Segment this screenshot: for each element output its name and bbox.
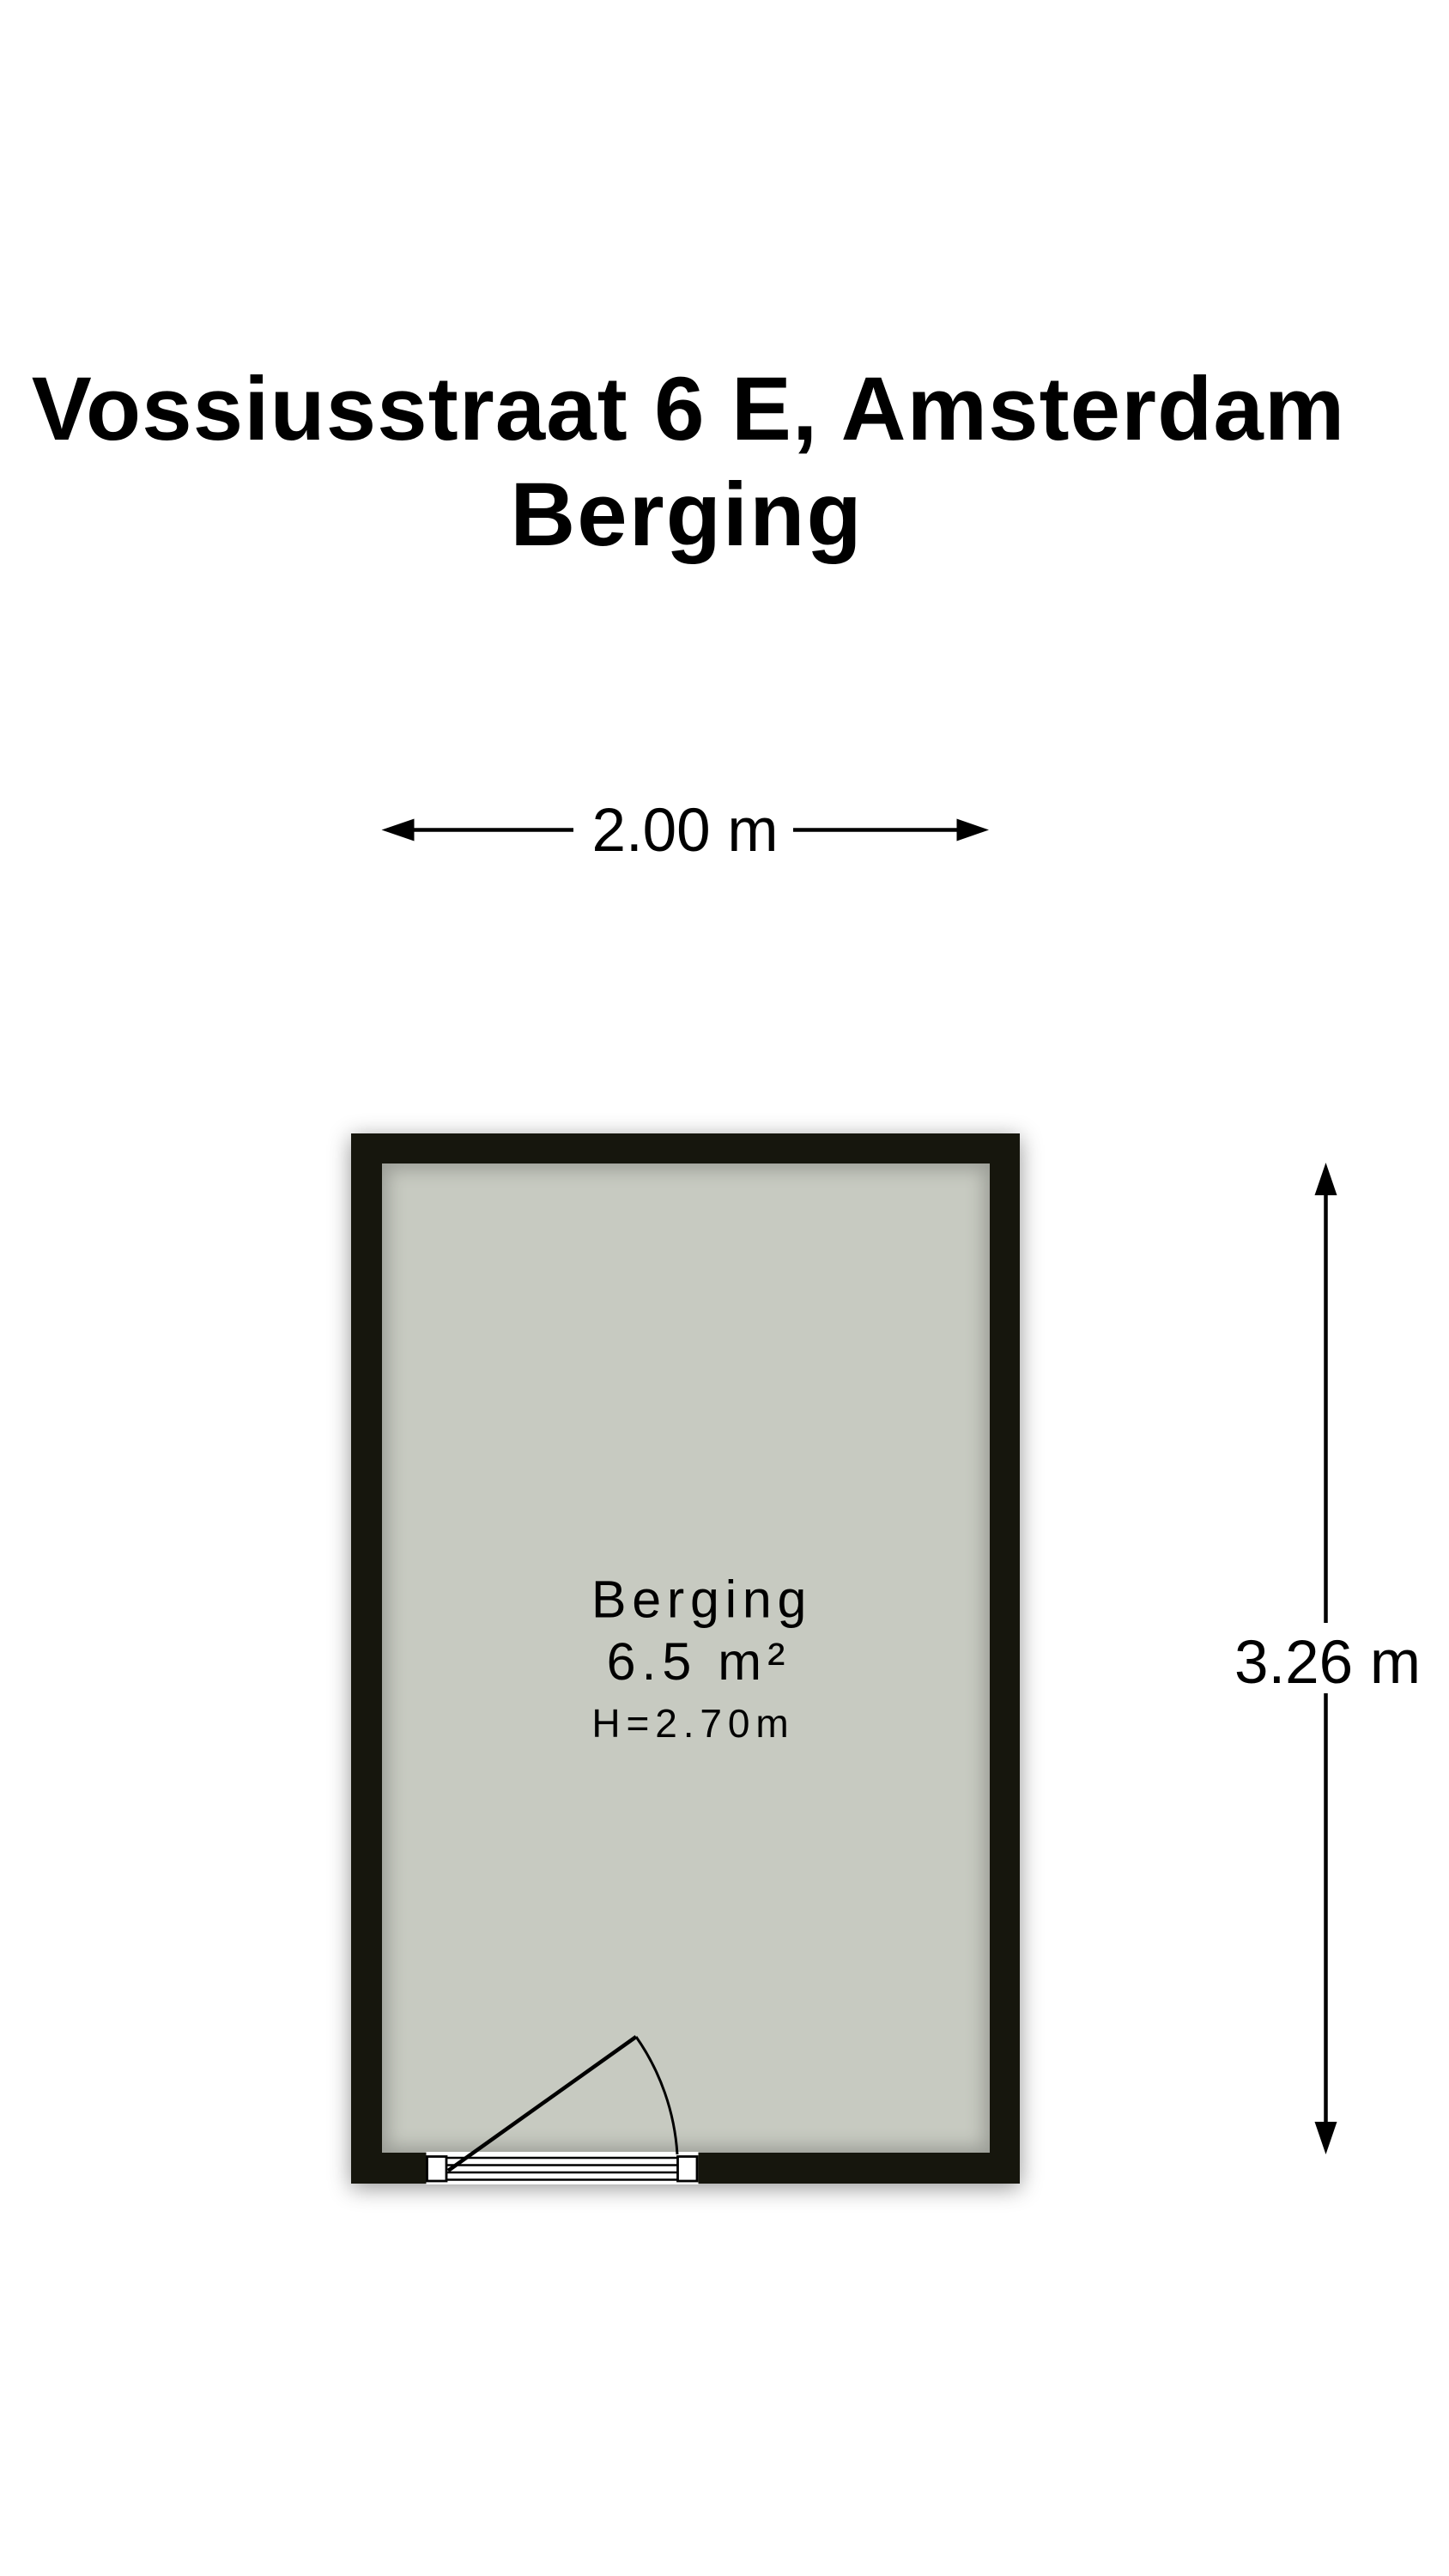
svg-text:6.5 m²: 6.5 m² bbox=[607, 1632, 791, 1691]
svg-text:Vossiusstraat 6 E, Amsterdam: Vossiusstraat 6 E, Amsterdam bbox=[32, 359, 1346, 459]
svg-text:Berging: Berging bbox=[510, 465, 863, 565]
svg-text:H=2.70m: H=2.70m bbox=[591, 1701, 794, 1746]
svg-text:3.26 m: 3.26 m bbox=[1234, 1629, 1421, 1697]
svg-text:Berging: Berging bbox=[591, 1571, 812, 1629]
svg-text:2.00 m: 2.00 m bbox=[591, 797, 778, 865]
